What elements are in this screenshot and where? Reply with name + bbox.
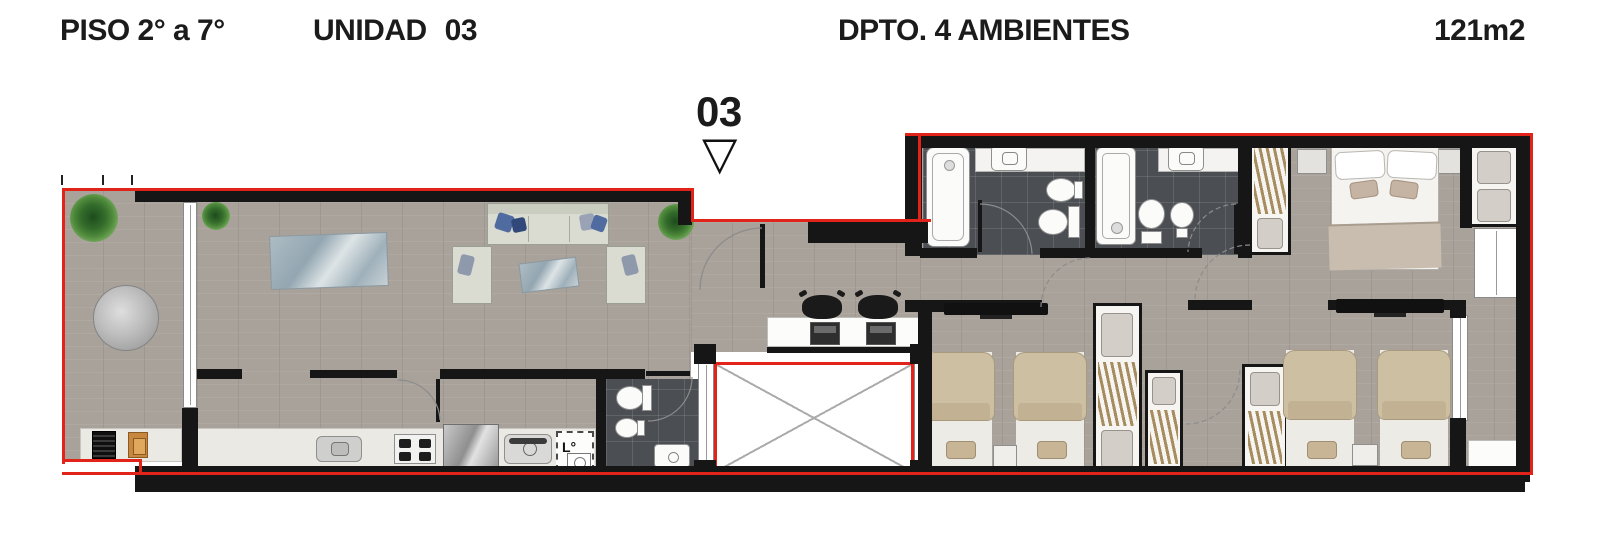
toilet-tank — [1068, 206, 1080, 238]
laptop — [810, 322, 840, 345]
balcony-glass-door — [183, 202, 197, 408]
unit-label-number: 03 — [445, 14, 477, 47]
wall-segment — [1238, 136, 1252, 258]
desk-chair — [802, 295, 842, 319]
bidet-base — [637, 420, 645, 436]
red-outline-segment — [918, 133, 921, 222]
tv — [1336, 299, 1444, 313]
burner — [399, 452, 411, 461]
bed-pillow — [1334, 150, 1385, 181]
wall-segment — [1188, 300, 1252, 310]
closet-hangers — [1098, 362, 1137, 426]
closet-shelf — [1477, 151, 1511, 184]
plant-icon — [202, 202, 230, 230]
burner — [419, 452, 431, 461]
dimension-tick — [131, 175, 133, 185]
bed-cushion — [1307, 441, 1337, 459]
dishwasher-door — [523, 442, 537, 456]
red-outline-segment — [691, 219, 931, 222]
powder-door-leaf — [646, 371, 690, 376]
closet-shelf — [1152, 377, 1176, 405]
wall-segment — [310, 370, 397, 378]
master-window — [1474, 228, 1518, 298]
wall-segment — [1450, 300, 1466, 318]
bed-cushion — [946, 441, 976, 459]
closet-shelf — [1477, 189, 1511, 222]
right-service-nook — [1468, 440, 1518, 468]
closet-hangers — [1150, 410, 1178, 464]
dimension-tick — [61, 175, 63, 185]
sink-drain — [668, 452, 679, 463]
armchair — [606, 246, 646, 304]
closet-shelf — [1101, 313, 1133, 357]
bidet-base — [1176, 228, 1188, 238]
bed-duvet — [923, 352, 995, 421]
unit-pointer-triangle-icon: ▽ — [702, 130, 737, 176]
wall-segment — [197, 369, 242, 379]
round-patio-table — [93, 285, 159, 351]
wall-segment — [182, 408, 198, 468]
nightstand — [1297, 149, 1327, 174]
red-outline-segment — [905, 133, 1533, 136]
red-outline-segment — [62, 459, 142, 462]
wall-segment — [596, 369, 645, 379]
single-bed — [926, 352, 992, 470]
grill-side-table — [128, 432, 148, 458]
void-shaft-x — [714, 362, 914, 474]
void-window-left — [698, 362, 714, 470]
dimension-tick — [102, 175, 104, 185]
toilet-tank — [642, 385, 652, 411]
single-bed — [1286, 350, 1354, 470]
wall-segment — [1085, 248, 1202, 258]
bathtub-drain — [944, 160, 955, 171]
bed-pillow — [1386, 150, 1437, 181]
red-outline-segment — [62, 472, 1533, 475]
wall-bottom-band — [135, 466, 1525, 492]
powder-sink — [654, 444, 690, 468]
nightstand — [993, 445, 1017, 467]
closet-master — [1468, 143, 1520, 227]
dishwasher-panel — [509, 438, 547, 444]
unit-label-word: UNIDAD — [313, 14, 427, 47]
closet-shelf — [1101, 430, 1133, 468]
grill-side-detail — [133, 438, 146, 455]
wall-segment — [596, 379, 606, 468]
tv — [944, 303, 1048, 315]
toilet-bowl — [1038, 209, 1068, 235]
accent-pillow — [1389, 179, 1419, 200]
wall-segment — [920, 248, 977, 258]
closet-hangers — [1254, 148, 1286, 214]
laptop — [866, 322, 896, 345]
wardrobe-central — [1093, 303, 1142, 475]
apartment-type-label: DPTO. 4 AMBIENTES — [838, 14, 1130, 48]
kitchen-sink — [316, 436, 362, 462]
sofa-seam — [569, 216, 570, 242]
dishwasher — [504, 434, 552, 464]
shower-drain — [1111, 222, 1123, 234]
floor-plan-sheet: PISO 2° a 7° UNIDAD03 DPTO. 4 AMBIENTES … — [0, 0, 1600, 553]
bed-cushion — [1401, 441, 1431, 459]
toilet-bowl — [616, 386, 644, 410]
laundry-projection-box: L° — [556, 431, 594, 471]
unit-label: UNIDAD03 — [313, 14, 477, 48]
entry-door-leaf — [760, 224, 765, 288]
bed-blanket — [1328, 222, 1441, 271]
red-outline-segment — [62, 188, 65, 464]
bidet — [1046, 178, 1076, 202]
floor-range-label: PISO 2° a 7° — [60, 14, 225, 48]
bed-duvet — [1013, 352, 1087, 421]
bed-duvet — [1283, 350, 1357, 420]
sofa-pillow-navy — [511, 217, 528, 234]
wall-segment — [1040, 248, 1090, 258]
wall-segment — [767, 347, 924, 353]
bathtub — [926, 147, 970, 247]
desk-counter — [767, 317, 922, 347]
sink-basin — [331, 442, 349, 456]
closet-hangers — [1248, 411, 1282, 464]
wall-segment — [1450, 418, 1466, 480]
armchair-pillow — [621, 254, 639, 277]
bidet — [1170, 202, 1194, 228]
wall-segment — [1085, 148, 1095, 255]
sofa-seam — [528, 216, 529, 242]
dining-table — [269, 232, 389, 290]
wall-segment — [440, 369, 600, 379]
stove — [394, 434, 436, 464]
closet-shelf — [1250, 372, 1280, 406]
single-bed — [1380, 350, 1448, 470]
sofa-pillow-blue — [590, 214, 608, 233]
nightstand — [1352, 444, 1378, 466]
bed-duvet — [1377, 350, 1451, 420]
wardrobe-bedroom-b1 — [1145, 370, 1183, 470]
sink-basin — [1179, 152, 1195, 165]
wall-segment — [905, 136, 1530, 148]
area-label: 121m2 — [1434, 14, 1525, 48]
toilet-bowl — [1138, 199, 1165, 229]
bed-cushion — [1037, 441, 1067, 459]
red-outline-segment — [691, 188, 694, 222]
accent-pillow — [1349, 179, 1379, 200]
armchair — [452, 246, 492, 304]
wall-segment — [918, 300, 932, 468]
bidet — [615, 418, 639, 438]
refrigerator — [443, 424, 499, 468]
kitchen-door-leaf — [436, 379, 440, 422]
bathroom-sink — [991, 145, 1027, 171]
grill — [92, 431, 116, 459]
wall-segment — [1516, 136, 1530, 482]
closet-hall — [1249, 143, 1291, 255]
sink-basin — [1002, 152, 1018, 165]
bath1-door-leaf — [978, 200, 982, 252]
plant-icon — [70, 194, 118, 242]
wall-segment — [694, 344, 716, 364]
armchair-pillow — [457, 254, 475, 277]
shower-tub — [1096, 147, 1136, 245]
burner — [399, 439, 411, 448]
wall-segment — [1460, 140, 1472, 228]
wall-segment — [678, 189, 692, 225]
bidet-base — [1074, 181, 1083, 199]
bedroom-b-window — [1452, 315, 1468, 421]
red-outline-segment — [1530, 133, 1533, 475]
single-bed — [1016, 352, 1084, 470]
desk-chair — [858, 295, 898, 319]
closet-shelf — [1257, 218, 1283, 249]
double-bed — [1331, 142, 1439, 270]
sofa — [487, 203, 609, 245]
red-outline-segment — [62, 188, 694, 191]
toilet-tank — [1141, 231, 1162, 244]
burner — [419, 439, 431, 448]
bathroom-sink — [1168, 145, 1204, 171]
wardrobe-bedroom-b2 — [1242, 364, 1288, 470]
